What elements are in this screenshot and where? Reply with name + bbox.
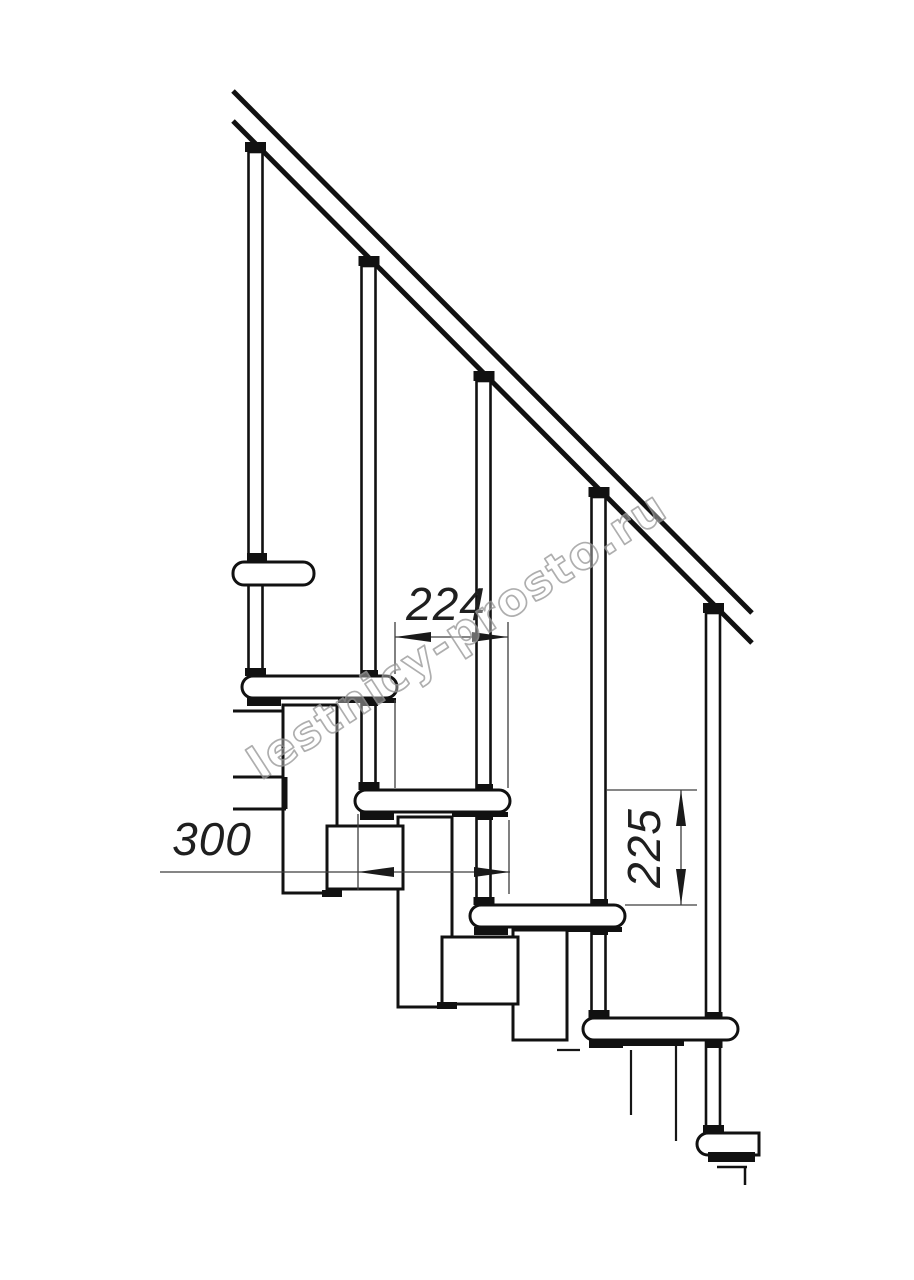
- bracket-body: [233, 562, 314, 585]
- baluster-5-collar-below: [706, 1040, 723, 1048]
- tread-3: [470, 905, 625, 927]
- dim-225-arrow-down: [676, 869, 686, 905]
- handrail-bracket: [233, 553, 314, 585]
- baluster-1-shaft: [249, 152, 263, 676]
- dim-225-arrow-up: [676, 790, 686, 826]
- tread-4: [583, 1018, 738, 1040]
- handrail-upper-line: [233, 91, 752, 613]
- baluster-5-collar-above: [706, 1012, 723, 1018]
- stringer-square-module-1: [327, 826, 403, 889]
- tread-2-underbar: [452, 812, 508, 817]
- module-joint-2: [437, 1002, 457, 1009]
- drawing-canvas: 224 300 225 lestnicy-prosto.ru: [0, 0, 914, 1280]
- dim-label-225: 225: [618, 808, 670, 889]
- baluster-1-foot: [245, 668, 266, 676]
- staircase-technical-drawing: 224 300 225 lestnicy-prosto.ru: [0, 0, 914, 1280]
- watermark-text: lestnicy-prosto.ru: [238, 480, 676, 790]
- baluster-4-top-cap: [589, 487, 610, 497]
- baluster-4-collar-above: [591, 899, 608, 905]
- tread-4-clamp: [589, 1040, 623, 1048]
- baluster-2-foot: [359, 782, 380, 790]
- baluster-1-top-cap: [245, 142, 266, 152]
- stringer-module-3: [513, 930, 567, 1040]
- baluster-5-foot: [703, 1125, 724, 1133]
- tread-5: [697, 1133, 759, 1155]
- baluster-3-foot: [474, 897, 495, 905]
- dimension-225: 225: [607, 790, 697, 905]
- tread-2: [355, 790, 510, 812]
- tread-4-underbar: [618, 1040, 684, 1046]
- handrail: [233, 91, 752, 643]
- tread-1-clamp: [247, 698, 281, 706]
- tread-3-underbar: [566, 927, 622, 932]
- dim-label-300: 300: [172, 813, 252, 865]
- dim-300-arrow-right: [474, 867, 510, 877]
- baluster-5-top-cap: [703, 603, 724, 613]
- baluster-3-collar-above: [476, 784, 493, 790]
- stringer-square-module-2: [442, 937, 518, 1004]
- baluster-4-foot: [589, 1010, 610, 1018]
- tread-2-clamp: [360, 812, 394, 820]
- tread-5-clamp: [708, 1152, 755, 1162]
- module-joint-1: [322, 890, 342, 897]
- baluster-5-shaft: [706, 613, 720, 1133]
- baluster-3-top-cap: [474, 371, 495, 381]
- baluster-2-top-cap: [359, 256, 380, 266]
- tread-3-clamp: [474, 927, 508, 935]
